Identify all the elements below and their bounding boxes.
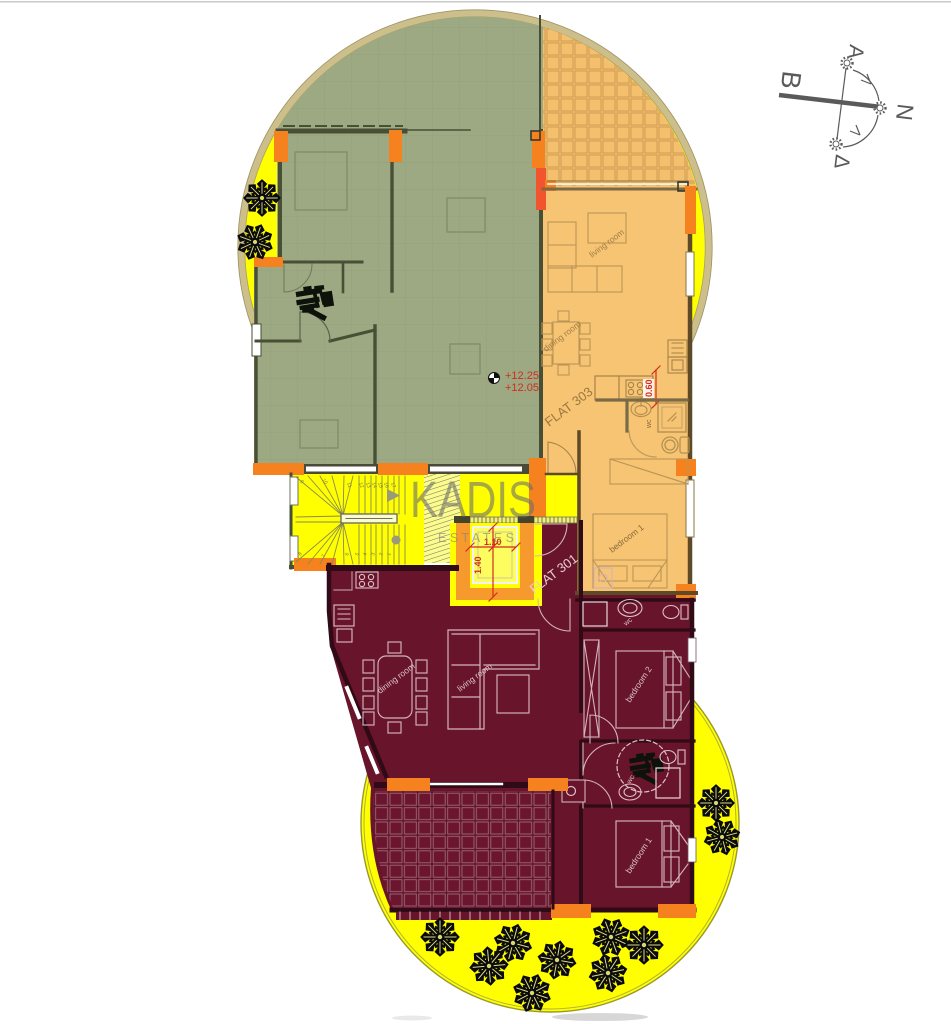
svg-text:Δ: Δ xyxy=(829,153,854,170)
svg-text:+12.05: +12.05 xyxy=(505,382,539,394)
svg-text:+12.25: +12.25 xyxy=(505,370,539,382)
svg-text:1.40: 1.40 xyxy=(473,556,483,574)
svg-text:N: N xyxy=(891,102,919,122)
svg-text:B: B xyxy=(775,69,807,91)
svg-text:A: A xyxy=(843,43,868,60)
svg-text:E S T A T E S: E S T A T E S xyxy=(438,530,514,545)
svg-text:KADIS: KADIS xyxy=(410,471,536,528)
svg-text:wc: wc xyxy=(646,419,653,429)
svg-text:0.60: 0.60 xyxy=(644,379,654,397)
